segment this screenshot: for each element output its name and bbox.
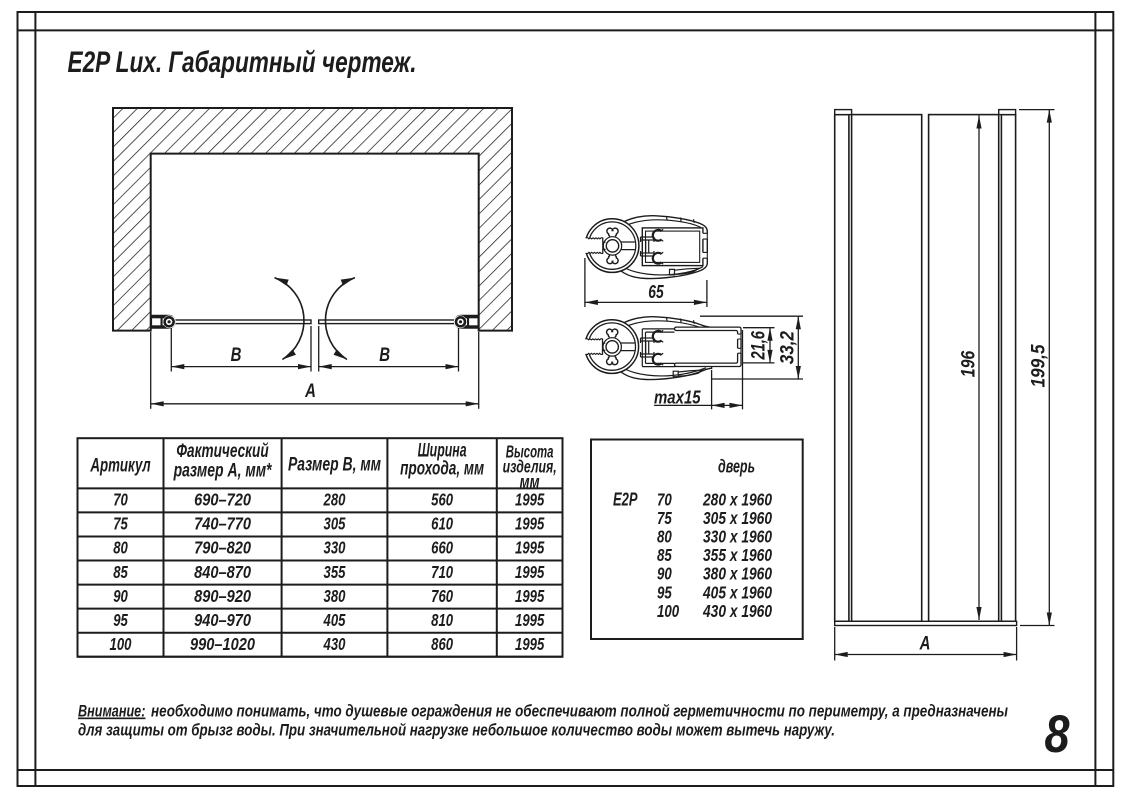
svg-text:дверь: дверь	[718, 457, 755, 477]
svg-text:Внимание:: Внимание:	[78, 702, 145, 721]
svg-text:710: 710	[431, 562, 453, 582]
svg-text:280: 280	[323, 490, 346, 510]
svg-text:380 x 1960: 380 x 1960	[703, 564, 772, 584]
svg-text:940–970: 940–970	[194, 610, 251, 630]
svg-text:max15: max15	[654, 387, 701, 408]
svg-text:380: 380	[324, 586, 346, 606]
svg-text:1995: 1995	[515, 562, 544, 582]
svg-text:90: 90	[113, 586, 128, 606]
svg-text:690–720: 690–720	[194, 490, 251, 510]
svg-text:100: 100	[657, 601, 679, 621]
svg-text:355 x 1960: 355 x 1960	[703, 545, 772, 565]
svg-text:Артикул: Артикул	[90, 455, 151, 477]
svg-text:560: 560	[431, 490, 453, 510]
svg-text:21,6: 21,6	[748, 331, 769, 361]
svg-text:196: 196	[959, 350, 980, 377]
svg-text:B: B	[231, 344, 242, 366]
svg-text:70: 70	[657, 489, 672, 509]
svg-text:1995: 1995	[515, 586, 544, 606]
svg-text:305: 305	[324, 514, 346, 534]
svg-text:75: 75	[657, 508, 672, 528]
svg-text:65: 65	[648, 281, 664, 302]
svg-text:1995: 1995	[515, 514, 544, 534]
svg-text:A: A	[304, 380, 316, 402]
svg-text:790–820: 790–820	[194, 538, 251, 558]
svg-text:280 x 1960: 280 x 1960	[702, 489, 772, 509]
svg-text:330 x 1960: 330 x 1960	[703, 527, 772, 547]
svg-text:1995: 1995	[515, 538, 544, 558]
svg-text:860: 860	[431, 634, 453, 654]
svg-text:810: 810	[431, 610, 453, 630]
svg-text:95: 95	[657, 582, 672, 602]
svg-text:90: 90	[657, 564, 672, 584]
svg-text:405: 405	[323, 610, 346, 630]
svg-text:199,5: 199,5	[1029, 344, 1050, 387]
svg-text:для защиты от брызг воды. При: для защиты от брызг воды. При значительн…	[78, 721, 835, 740]
svg-text:необходимо понимать, что душев: необходимо понимать, что душевые огражде…	[151, 702, 1009, 721]
svg-text:760: 760	[431, 586, 453, 606]
svg-text:80: 80	[657, 527, 672, 547]
svg-text:70: 70	[113, 490, 128, 510]
svg-text:85: 85	[113, 562, 128, 582]
svg-text:840–870: 840–870	[194, 562, 251, 582]
svg-text:мм: мм	[520, 472, 540, 492]
svg-text:355: 355	[324, 562, 346, 582]
svg-text:405 x 1960: 405 x 1960	[702, 582, 772, 602]
svg-text:75: 75	[113, 514, 128, 534]
svg-text:890–920: 890–920	[194, 586, 251, 606]
svg-text:1995: 1995	[515, 634, 544, 654]
svg-text:305 x 1960: 305 x 1960	[703, 508, 772, 528]
svg-text:B: B	[379, 344, 390, 366]
svg-text:размер А, мм*: размер А, мм*	[173, 459, 273, 481]
svg-text:прохода, мм: прохода, мм	[400, 458, 484, 480]
svg-text:8: 8	[1045, 705, 1070, 764]
svg-text:430 x 1960: 430 x 1960	[702, 601, 772, 621]
svg-text:740–770: 740–770	[194, 514, 251, 534]
svg-text:100: 100	[110, 634, 132, 654]
svg-text:660: 660	[431, 538, 453, 558]
svg-text:80: 80	[113, 538, 128, 558]
svg-text:330: 330	[324, 538, 346, 558]
svg-text:990–1020: 990–1020	[190, 634, 255, 654]
svg-text:1995: 1995	[515, 490, 544, 510]
svg-text:1995: 1995	[515, 610, 544, 630]
svg-text:95: 95	[113, 610, 128, 630]
svg-text:85: 85	[657, 545, 672, 565]
svg-text:E2P Lux. Габаритный чертеж.: E2P Lux. Габаритный чертеж.	[68, 46, 417, 79]
svg-text:Размер В, мм: Размер В, мм	[288, 454, 381, 476]
svg-text:A: A	[919, 633, 931, 655]
svg-text:430: 430	[323, 634, 346, 654]
svg-text:610: 610	[431, 514, 453, 534]
svg-text:33,2: 33,2	[778, 331, 799, 364]
svg-text:E2P: E2P	[613, 489, 638, 509]
